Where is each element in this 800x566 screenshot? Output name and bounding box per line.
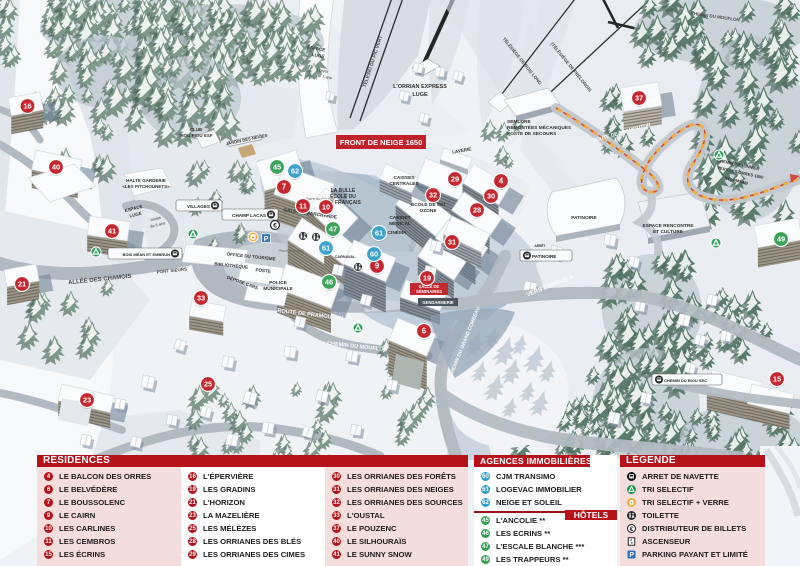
svg-text:P: P [629, 552, 634, 559]
svg-text:€: € [630, 526, 634, 533]
